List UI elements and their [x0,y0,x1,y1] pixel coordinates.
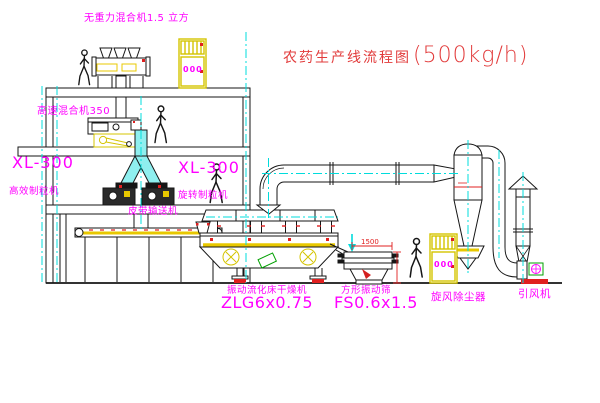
control-cabinet-top [179,39,206,88]
control-cabinet-right [430,234,457,283]
label-granulator-middle-model: XL-300 [178,160,240,176]
label-belt-conveyor: 皮带输送机 [128,207,178,217]
diagram-title: 农药生产线流程图 (500kg/h) [283,45,528,67]
panel-top-display: 000 [183,66,203,74]
label-screen-model: FS0.6x1.5 [334,295,418,311]
title-text: 农药生产线流程图 [283,51,411,65]
label-cyclone: 旋风除尘器 [431,292,486,303]
panel-right-display: 000 [434,261,454,269]
label-granulator-left-model: XL-300 [12,155,74,171]
flow-diagram: 无重力混合机1.5 立方 农药生产线流程图 (500kg/h) 高速混合机350… [0,0,600,403]
label-fan: 引风机 [518,289,551,300]
label-gravity-mixer: 无重力混合机1.5 立方 [84,14,189,24]
title-capacity: (500kg/h) [413,45,528,67]
exhaust-duct-drawing [257,162,434,214]
induced-draft-fan-drawing [517,261,548,284]
label-granulator-middle-name: 旋转制粒机 [178,191,228,201]
person-figure [155,106,166,143]
feed-pipe [116,97,126,118]
fluid-bed-dryer-drawing [196,210,338,283]
dimension-screen-length: 1500 [361,239,379,246]
person-figure [410,239,422,278]
label-high-speed-mixer: 高速混合机350 [37,107,110,117]
label-granulator-left-name: 高效制粒机 [9,187,59,197]
high-speed-mixer-drawing [88,118,141,147]
person-figure [79,50,90,85]
label-dryer-model: ZLG6x0.75 [221,295,313,311]
